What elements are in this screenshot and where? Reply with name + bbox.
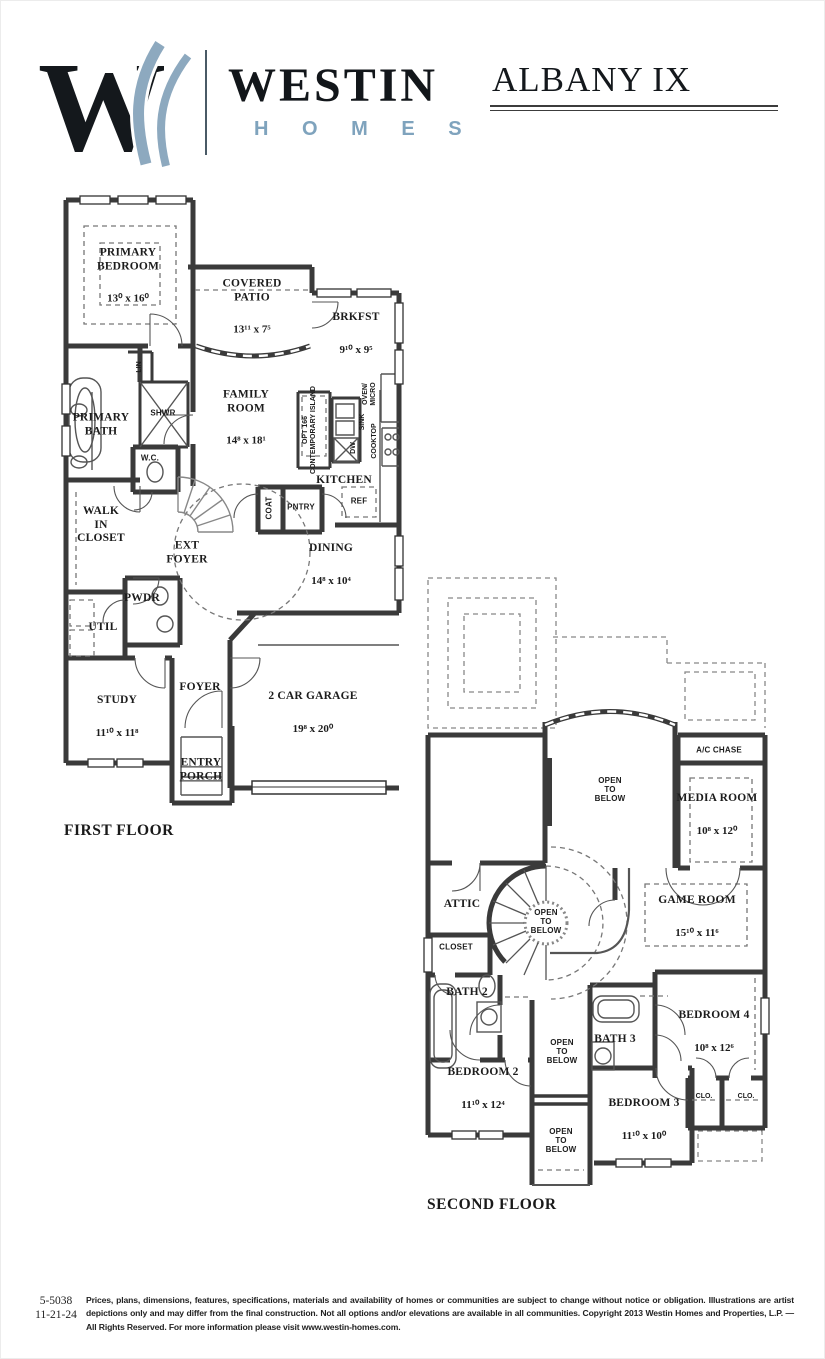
burner-3: [385, 449, 391, 455]
label-bedroom2: BEDROOM 2 11¹⁰ x 12⁴: [447, 1048, 518, 1130]
label-pwdr: PWDR: [124, 574, 160, 624]
first-floor-title: FIRST FLOOR: [64, 822, 174, 840]
label-ext-foyer: EXT FOYER: [166, 521, 207, 584]
label-open-below-bottom: OPEN TO BELOW: [546, 1127, 577, 1155]
label-pntry: PNTRY: [287, 502, 315, 511]
burner-1: [385, 434, 391, 440]
label-closet: CLOSET: [439, 942, 473, 951]
wc-toilet: [147, 462, 163, 482]
label-garage: 2 CAR GARAGE 19⁸ x 20⁰: [268, 672, 357, 754]
label-walk-in-closet: WALK IN CLOSET: [77, 487, 125, 563]
label-brkfst: BRKFST 9¹⁰ x 9⁵: [332, 293, 379, 375]
label-media-room: MEDIA ROOM 10⁸ x 12⁰: [677, 774, 758, 856]
label-ref: REF: [351, 496, 368, 505]
label-wc: W.C.: [141, 453, 159, 462]
label-coat: COAT: [264, 497, 273, 520]
label-clo-left: CLO.: [696, 1093, 713, 1101]
garage-door: [252, 781, 386, 794]
disclaimer-text: Prices, plans, dimensions, features, spe…: [86, 1294, 794, 1334]
second-floor-title: SECOND FLOOR: [427, 1196, 557, 1214]
label-ac-chase: A/C CHASE: [696, 745, 742, 754]
label-open-below-mid: OPEN TO BELOW: [547, 1038, 578, 1066]
label-bath2: BATH 2: [446, 968, 488, 1018]
label-primary-bedroom: PRIMARY BEDROOM 13⁰ x 16⁰: [97, 228, 159, 323]
label-primary-bath: PRIMARY BATH: [73, 393, 130, 456]
label-bath3: BATH 3: [594, 1015, 636, 1065]
label-oven-micro: OVEN/ MICRO: [362, 382, 378, 405]
label-util: UTIL: [89, 603, 118, 653]
shaft-divider-wall: [532, 1096, 590, 1104]
label-covered-patio: COVERED PATIO 13¹¹ x 7⁵: [223, 259, 282, 354]
label-sink: SINK: [359, 414, 367, 431]
label-shwr: SHWR: [150, 408, 175, 417]
label-study: STUDY 11¹⁰ x 11⁸: [96, 676, 139, 758]
plan-number-block: 5-5038 11-21-24: [24, 1294, 88, 1323]
floor-plan-sheet: W WESTIN H O M E S ALBANY IX: [0, 0, 825, 1359]
label-dining: DINING 14⁸ x 10⁴: [309, 524, 353, 606]
label-entry-porch: ENTRY PORCH: [180, 738, 223, 801]
label-bedroom3: BEDROOM 3 11¹⁰ x 10⁰: [608, 1079, 679, 1161]
label-lin: LIN: [136, 361, 144, 372]
label-open-below-top: OPEN TO BELOW: [595, 776, 626, 804]
tower-wall-niche: [545, 758, 552, 826]
label-open-below-stair: OPEN TO BELOW: [531, 908, 562, 936]
label-foyer: FOYER: [179, 663, 220, 713]
label-game-room: GAME ROOM 15¹⁰ x 11⁶: [658, 876, 736, 958]
label-clo-right: CLO.: [738, 1093, 755, 1101]
label-opt-island: OPT 166 CONTEMPORARY ISLAND: [302, 386, 318, 474]
label-family-room: FAMILY ROOM 14⁸ x 18¹: [223, 370, 269, 465]
plan-number: 5-5038: [24, 1294, 88, 1308]
label-cooktop: COOKTOP: [371, 423, 379, 458]
label-attic: ATTIC: [444, 880, 481, 930]
label-bedroom4: BEDROOM 4 10⁸ x 12⁶: [678, 991, 749, 1073]
plan-date: 11-21-24: [24, 1308, 88, 1322]
label-dw: DW: [350, 442, 358, 454]
